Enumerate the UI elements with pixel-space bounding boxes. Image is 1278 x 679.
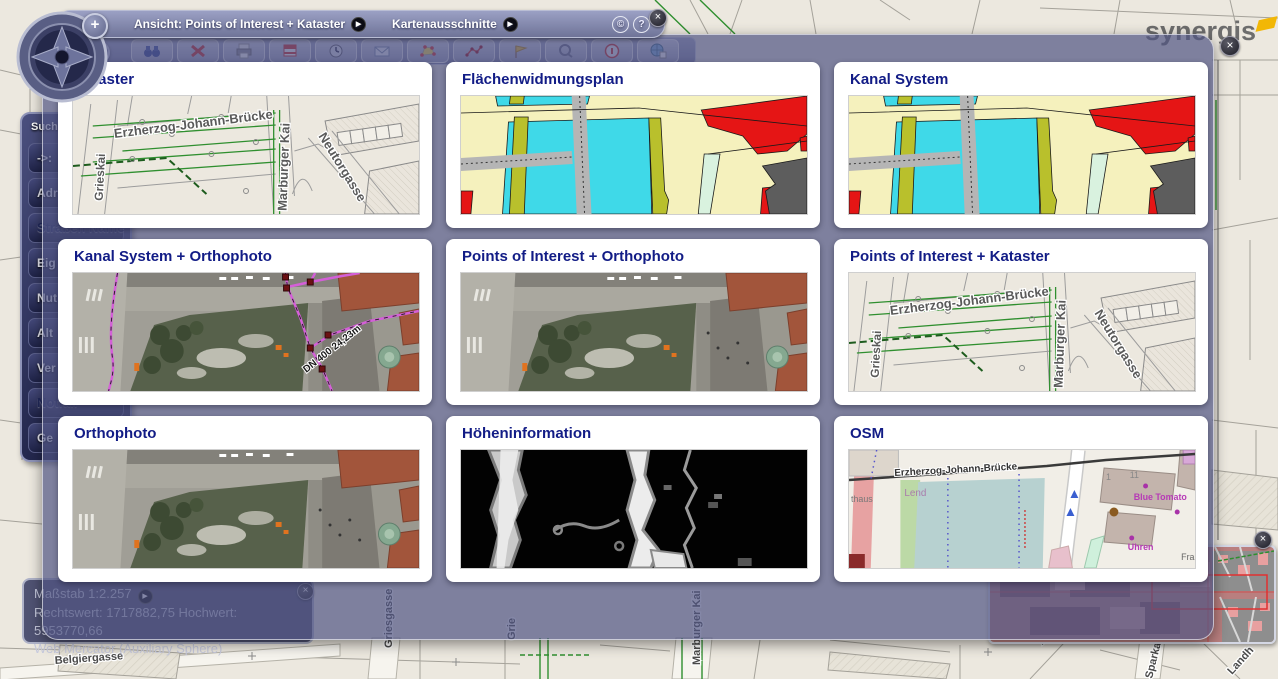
kartenausschnitte-button[interactable]: Kartenausschnitte — [392, 17, 497, 31]
tile-thumbnail-ortho-canal: DN 400 24,23m — [72, 272, 420, 392]
svg-text:Uhren: Uhren — [1128, 542, 1154, 552]
zoom-in-button[interactable]: + — [82, 13, 108, 39]
tile-title: OSM — [850, 425, 884, 442]
tile-title: Flächenwidmungsplan — [462, 71, 624, 88]
dialog-close-icon[interactable]: × — [1220, 36, 1240, 56]
help-button[interactable]: ? — [633, 16, 650, 33]
tile-orthophoto[interactable]: Orthophoto — [58, 416, 432, 582]
tile-osm[interactable]: OSM Erzherzog-Johann-Brücke — [834, 416, 1208, 582]
tile-kanal-system[interactable]: Kanal System — [834, 62, 1208, 228]
view-menu-play-icon[interactable]: ▶ — [351, 17, 366, 32]
tile-kataster[interactable]: Kataster Erzherzog-Johann-Brücke Grieska… — [58, 62, 432, 228]
tile-thumbnail-kataster: Erzherzog-Johann-Brücke Grieskai Marburg… — [72, 95, 420, 215]
tile-poi-orthophoto[interactable]: Points of Interest + Orthophoto — [446, 239, 820, 405]
tile-title: Kanal System — [850, 71, 948, 88]
tile-thumbnail-zoning — [848, 95, 1196, 215]
tile-thumbnail-ortho — [72, 449, 420, 569]
svg-text:Blue Tomato: Blue Tomato — [1134, 492, 1188, 502]
tile-thumbnail-kataster: Erzherzog-Johann-Brücke Grieskai Marburg… — [848, 272, 1196, 392]
tile-hoeheninformation[interactable]: Höheninformation — [446, 416, 820, 582]
svg-text:Marburger Kai: Marburger Kai — [275, 123, 293, 211]
svg-text:11: 11 — [1130, 470, 1139, 480]
tile-title: Points of Interest + Kataster — [850, 248, 1050, 265]
svg-text:Grieskai: Grieskai — [868, 330, 884, 378]
synergis-logo-accent — [1256, 16, 1278, 32]
tile-thumbnail-ortho — [460, 272, 808, 392]
svg-text:Fra: Fra — [1181, 552, 1194, 562]
sections-menu-play-icon[interactable]: ▶ — [503, 17, 518, 32]
copyright-button[interactable]: © — [612, 16, 629, 33]
tile-flaechenwidmungsplan[interactable]: Flächenwidmungsplan — [446, 62, 820, 228]
tile-thumbnail-zoning — [460, 95, 808, 215]
svg-text:Marburger Kai: Marburger Kai — [1051, 300, 1069, 388]
tile-thumbnail-osm: Erzherzog-Johann-Brücke thaus Lend 1 11 … — [848, 449, 1196, 569]
tile-title: Points of Interest + Orthophoto — [462, 248, 684, 265]
svg-text:thaus: thaus — [851, 494, 873, 504]
svg-text:Grieskai: Grieskai — [92, 153, 108, 201]
svg-text:1: 1 — [1106, 472, 1111, 482]
overview-close-icon[interactable]: × — [1254, 531, 1272, 549]
tile-title: Kanal System + Orthophoto — [74, 248, 272, 265]
tile-kanal-orthophoto[interactable]: Kanal System + Orthophoto — [58, 239, 432, 405]
tile-title: Orthophoto — [74, 425, 156, 442]
toolbar-close-icon[interactable]: × — [649, 9, 667, 27]
tile-thumbnail-elevation — [460, 449, 808, 569]
projection-readout: Web Mercator (Auxiliary Sphere) — [34, 640, 302, 658]
svg-text:Lend: Lend — [904, 488, 926, 499]
active-view-label[interactable]: Ansicht: Points of Interest + Kataster — [134, 17, 345, 31]
tile-title: Höheninformation — [462, 425, 591, 442]
gis-application: Belgiergasse Griesgasse Grie Marburger K… — [0, 0, 1278, 679]
view-toolbar: Ansicht: Points of Interest + Kataster ▶… — [57, 10, 665, 38]
tile-poi-kataster[interactable]: Points of Interest + Kataster Erzherzog-… — [834, 239, 1208, 405]
